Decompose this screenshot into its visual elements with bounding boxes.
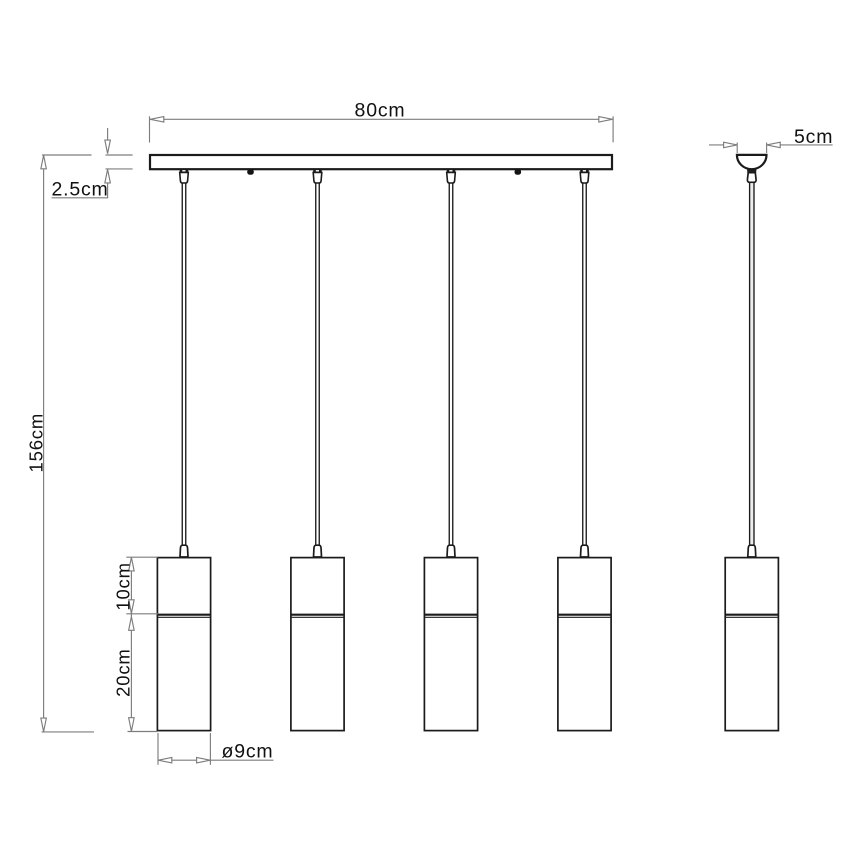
svg-text:156cm: 156cm <box>26 413 47 473</box>
svg-text:20cm: 20cm <box>113 648 134 696</box>
svg-text:5cm: 5cm <box>794 126 833 148</box>
svg-text:2.5cm: 2.5cm <box>52 178 109 200</box>
svg-text:ø9cm: ø9cm <box>222 741 274 763</box>
svg-text:80cm: 80cm <box>355 100 406 122</box>
svg-text:10cm: 10cm <box>113 562 134 610</box>
